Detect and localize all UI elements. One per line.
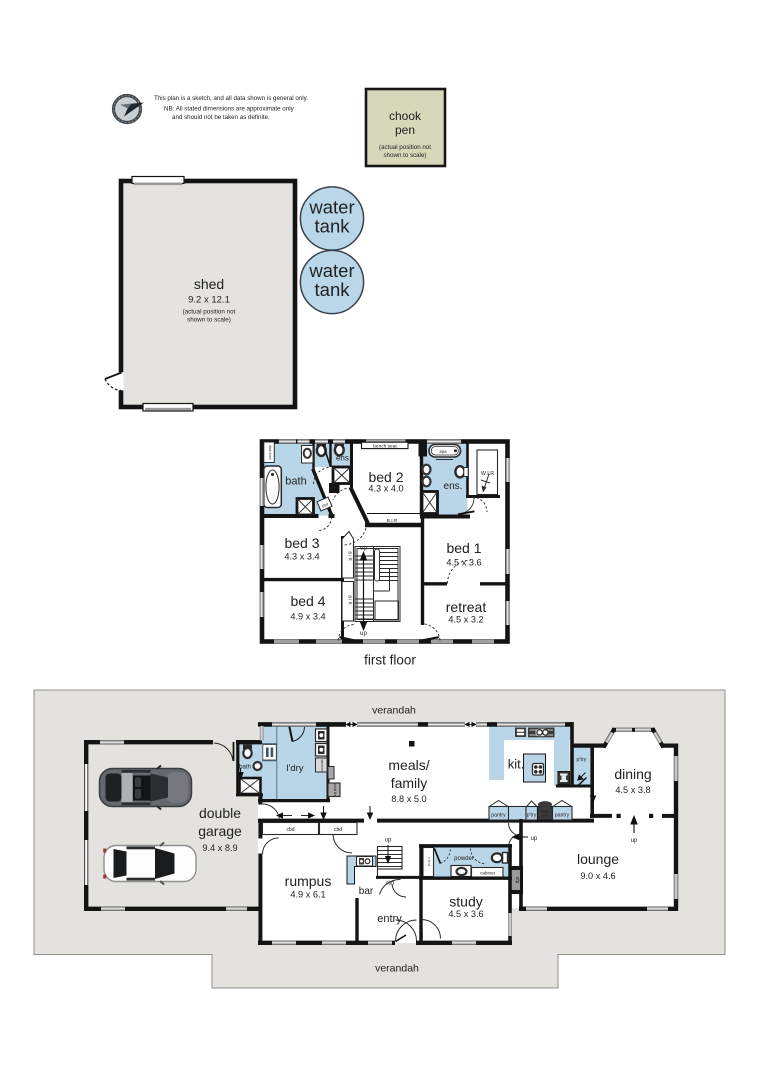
svg-text:shown to scale): shown to scale)	[384, 152, 427, 159]
svg-text:family: family	[391, 775, 428, 791]
svg-text:verandah: verandah	[372, 705, 416, 717]
svg-text:4.3 x 3.4: 4.3 x 3.4	[284, 552, 319, 562]
svg-text:entry: entry	[377, 913, 402, 925]
svg-text:4.3 x 4.0: 4.3 x 4.0	[368, 484, 403, 494]
svg-text:dining: dining	[614, 766, 651, 782]
svg-text:bench seat: bench seat	[373, 443, 397, 449]
svg-text:4.5 x 3.2: 4.5 x 3.2	[448, 615, 483, 625]
svg-text:ens.: ens.	[336, 454, 351, 463]
svg-text:8.8 x 5.0: 8.8 x 5.0	[391, 794, 426, 804]
svg-text:ens.: ens.	[444, 481, 463, 492]
svg-text:retreat: retreat	[446, 599, 487, 615]
svg-text:spa: spa	[439, 449, 447, 454]
svg-text:first floor: first floor	[364, 653, 416, 668]
svg-text:bed 3: bed 3	[284, 535, 319, 551]
svg-text:wood fire: wood fire	[333, 784, 337, 797]
svg-text:water: water	[308, 260, 354, 281]
svg-text:shown to scale): shown to scale)	[187, 317, 231, 324]
svg-text:NB: All stated dimensions are: NB: All stated dimensions are approximat…	[164, 106, 295, 113]
svg-text:4.5 x 3.6: 4.5 x 3.6	[448, 909, 483, 919]
svg-text:meals/: meals/	[388, 757, 429, 773]
svg-text:9.4 x 8.9: 9.4 x 8.9	[202, 843, 237, 853]
svg-text:cbd: cbd	[334, 827, 342, 833]
svg-text:bar: bar	[359, 886, 374, 897]
svg-text:bed 4: bed 4	[290, 593, 325, 609]
svg-text:oven: oven	[541, 814, 548, 818]
svg-text:up: up	[531, 836, 538, 842]
svg-text:kit.: kit.	[508, 757, 525, 772]
svg-text:double: double	[199, 805, 241, 821]
svg-text:cbd: cbd	[286, 827, 294, 833]
svg-text:B I R: B I R	[348, 595, 353, 604]
svg-text:(actual position not: (actual position not	[379, 144, 431, 151]
svg-text:up: up	[360, 630, 367, 637]
svg-text:wash mc: wash mc	[320, 759, 324, 772]
svg-text:This plan is a sketch, and all: This plan is a sketch, and all data show…	[154, 95, 308, 102]
svg-text:(actual position not: (actual position not	[183, 309, 236, 316]
svg-text:4.9 x 6.1: 4.9 x 6.1	[290, 890, 325, 900]
svg-text:c b d: c b d	[427, 857, 431, 865]
svg-text:powder: powder	[454, 856, 474, 862]
svg-text:up: up	[360, 545, 367, 552]
svg-text:rumpus: rumpus	[285, 873, 332, 889]
svg-text:up: up	[631, 838, 638, 844]
svg-text:shed: shed	[194, 276, 224, 292]
svg-text:chook: chook	[389, 109, 422, 123]
svg-text:study: study	[449, 894, 482, 910]
svg-text:up: up	[385, 838, 392, 844]
svg-text:and should not be taken as def: and should not be taken as definite.	[172, 114, 270, 121]
svg-text:4.5 x 3.8: 4.5 x 3.8	[615, 785, 650, 795]
svg-text:verandah: verandah	[375, 963, 419, 975]
svg-text:dble linen: dble linen	[268, 445, 272, 460]
svg-text:pantry: pantry	[491, 813, 506, 819]
svg-text:p'try: p'try	[527, 813, 537, 819]
svg-text:4.9 x 3.4: 4.9 x 3.4	[290, 612, 325, 622]
svg-text:water: water	[308, 197, 354, 218]
svg-text:cabinet: cabinet	[480, 871, 496, 876]
svg-text:lounge: lounge	[577, 851, 619, 867]
svg-text:garage: garage	[198, 823, 242, 839]
svg-text:tank: tank	[315, 216, 351, 237]
svg-text:4.5 x 3.6: 4.5 x 3.6	[446, 558, 481, 568]
svg-text:l'dry: l'dry	[286, 763, 303, 774]
svg-text:9.2 x 12.1: 9.2 x 12.1	[188, 295, 230, 306]
svg-text:pen: pen	[395, 123, 415, 137]
svg-text:bed 1: bed 1	[446, 540, 481, 556]
svg-text:ofp: ofp	[514, 877, 520, 884]
svg-text:9.0 x 4.6: 9.0 x 4.6	[580, 871, 615, 881]
svg-text:B.I.R: B.I.R	[387, 518, 398, 524]
svg-text:p'try: p'try	[576, 757, 586, 763]
svg-text:pantry: pantry	[555, 813, 570, 819]
svg-text:W.I.R: W.I.R	[481, 471, 494, 477]
svg-text:bath: bath	[285, 476, 306, 488]
svg-text:tank: tank	[315, 279, 351, 300]
svg-text:B I R: B I R	[348, 551, 353, 560]
